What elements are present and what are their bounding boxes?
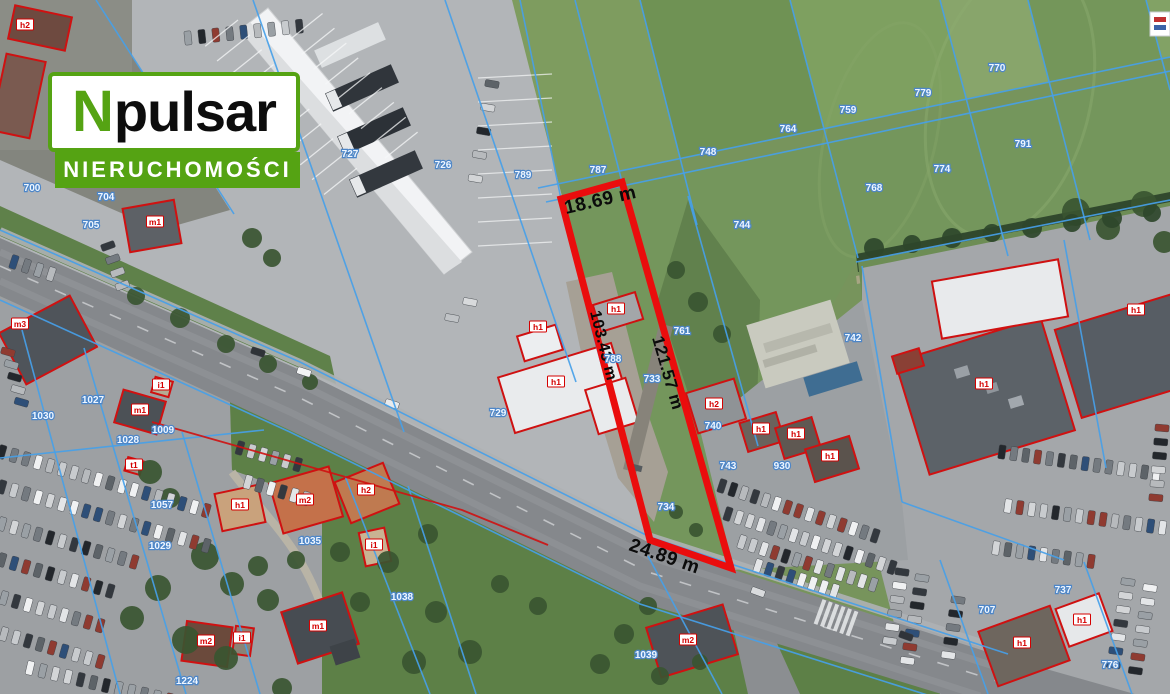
tree: [667, 261, 685, 279]
tree: [529, 597, 547, 615]
logo-letter: N: [72, 83, 114, 141]
parcel-number: 743: [720, 461, 737, 472]
car: [184, 31, 192, 46]
parcel-number: 727: [342, 149, 359, 160]
parcel-number: 707: [979, 605, 996, 616]
tree: [259, 355, 277, 373]
tree: [257, 589, 279, 611]
building-label: h2: [361, 485, 371, 495]
parcel-number: 768: [866, 183, 883, 194]
car: [253, 23, 261, 38]
parcel-number: 764: [780, 124, 797, 135]
parcel-number: 1028: [117, 435, 140, 446]
tree: [688, 292, 708, 312]
parcel-number: 748: [700, 147, 717, 158]
parcel-number: 1039: [635, 650, 658, 661]
parcel-number: 1009: [152, 425, 175, 436]
car: [281, 20, 289, 35]
tree: [864, 238, 884, 258]
parcel-number: 742: [845, 333, 862, 344]
car: [1152, 452, 1167, 460]
parcel-number: 791: [1015, 139, 1032, 150]
building-label: i1: [157, 380, 164, 390]
building-label: h1: [551, 377, 561, 387]
parcel-number: 1224: [176, 676, 199, 687]
parcel-number: 744: [734, 220, 751, 231]
building-label: h1: [611, 304, 621, 314]
parcel-number: 930: [774, 461, 791, 472]
parcel-number: 1027: [82, 395, 105, 406]
building-label: m1: [149, 217, 162, 227]
logo-word: pulsar: [114, 84, 276, 140]
parcel-number: 1035: [299, 536, 322, 547]
parcel-number: 776: [1102, 660, 1119, 671]
car: [1155, 424, 1170, 432]
building-label: i1: [238, 633, 245, 643]
car: [1154, 438, 1169, 446]
building-label: h1: [791, 429, 801, 439]
parcel-number: 779: [915, 88, 932, 99]
parcel-number: 705: [83, 220, 100, 231]
building-label: h1: [979, 379, 989, 389]
parcel-number: 700: [24, 183, 41, 194]
car: [1150, 480, 1165, 488]
building-label: m1: [312, 621, 325, 631]
building-label: m3: [14, 319, 27, 329]
tree: [330, 542, 350, 562]
building-label: h1: [533, 322, 543, 332]
tree: [689, 523, 703, 537]
parcel-number: 770: [989, 63, 1006, 74]
parcel-number: 737: [1055, 585, 1072, 596]
building-label: h2: [20, 20, 30, 30]
parcel-number: 1029: [149, 541, 172, 552]
building-label: h2: [709, 399, 719, 409]
aerial-map: 18.69 m 103.43 m 121.57 m 24.89 m 770779…: [0, 0, 1170, 694]
parcel-number: 740: [705, 421, 722, 432]
building-label: h1: [756, 424, 766, 434]
tree: [172, 626, 200, 654]
tree: [287, 551, 305, 569]
parcel-number: 729: [490, 408, 507, 419]
tree: [220, 572, 244, 596]
building-label: h1: [825, 451, 835, 461]
car: [267, 22, 275, 37]
logo-tagline: NIERUCHOMOŚCI: [55, 152, 300, 188]
tree: [425, 601, 447, 623]
tree: [1143, 204, 1161, 222]
tree: [614, 624, 634, 644]
building-label: h1: [1131, 305, 1141, 315]
parcel-number: 1057: [151, 500, 174, 511]
parcel-number: 761: [674, 326, 691, 337]
building-label: m2: [200, 636, 213, 646]
tree: [248, 556, 268, 576]
building-label: h1: [1017, 638, 1027, 648]
tree: [217, 335, 235, 353]
tree: [1063, 214, 1081, 232]
tree: [170, 308, 190, 328]
car: [1149, 494, 1164, 502]
parcel-number: 704: [98, 192, 115, 203]
tree: [377, 551, 399, 573]
building-label: m1: [134, 405, 147, 415]
map-control: [1150, 12, 1170, 36]
parcel-number: 726: [435, 160, 452, 171]
building-label: m2: [682, 635, 695, 645]
tree: [590, 654, 610, 674]
parcel-number: 733: [644, 374, 661, 385]
parcel-number: 774: [934, 164, 951, 175]
parcel-number: 1038: [391, 592, 414, 603]
parcel-number: 788: [605, 354, 622, 365]
building-label: h1: [235, 500, 245, 510]
tree: [491, 575, 509, 593]
tree: [263, 249, 281, 267]
building-label: m2: [299, 495, 312, 505]
parcel-number: 1030: [32, 411, 55, 422]
parcel-number: 789: [515, 170, 532, 181]
tree: [214, 646, 238, 670]
tree: [651, 667, 669, 685]
car: [1151, 466, 1166, 474]
parcel-number: 787: [590, 165, 607, 176]
tree: [242, 228, 262, 248]
tree: [120, 606, 144, 630]
car: [198, 29, 206, 44]
parcel-number: 734: [658, 502, 675, 513]
tree: [350, 592, 370, 612]
logo: Npulsar: [48, 72, 300, 152]
parcel-number: 759: [840, 105, 857, 116]
building-label: t1: [130, 460, 138, 470]
building-label: i1: [370, 540, 377, 550]
tree: [983, 224, 1001, 242]
building-label: h1: [1077, 615, 1087, 625]
